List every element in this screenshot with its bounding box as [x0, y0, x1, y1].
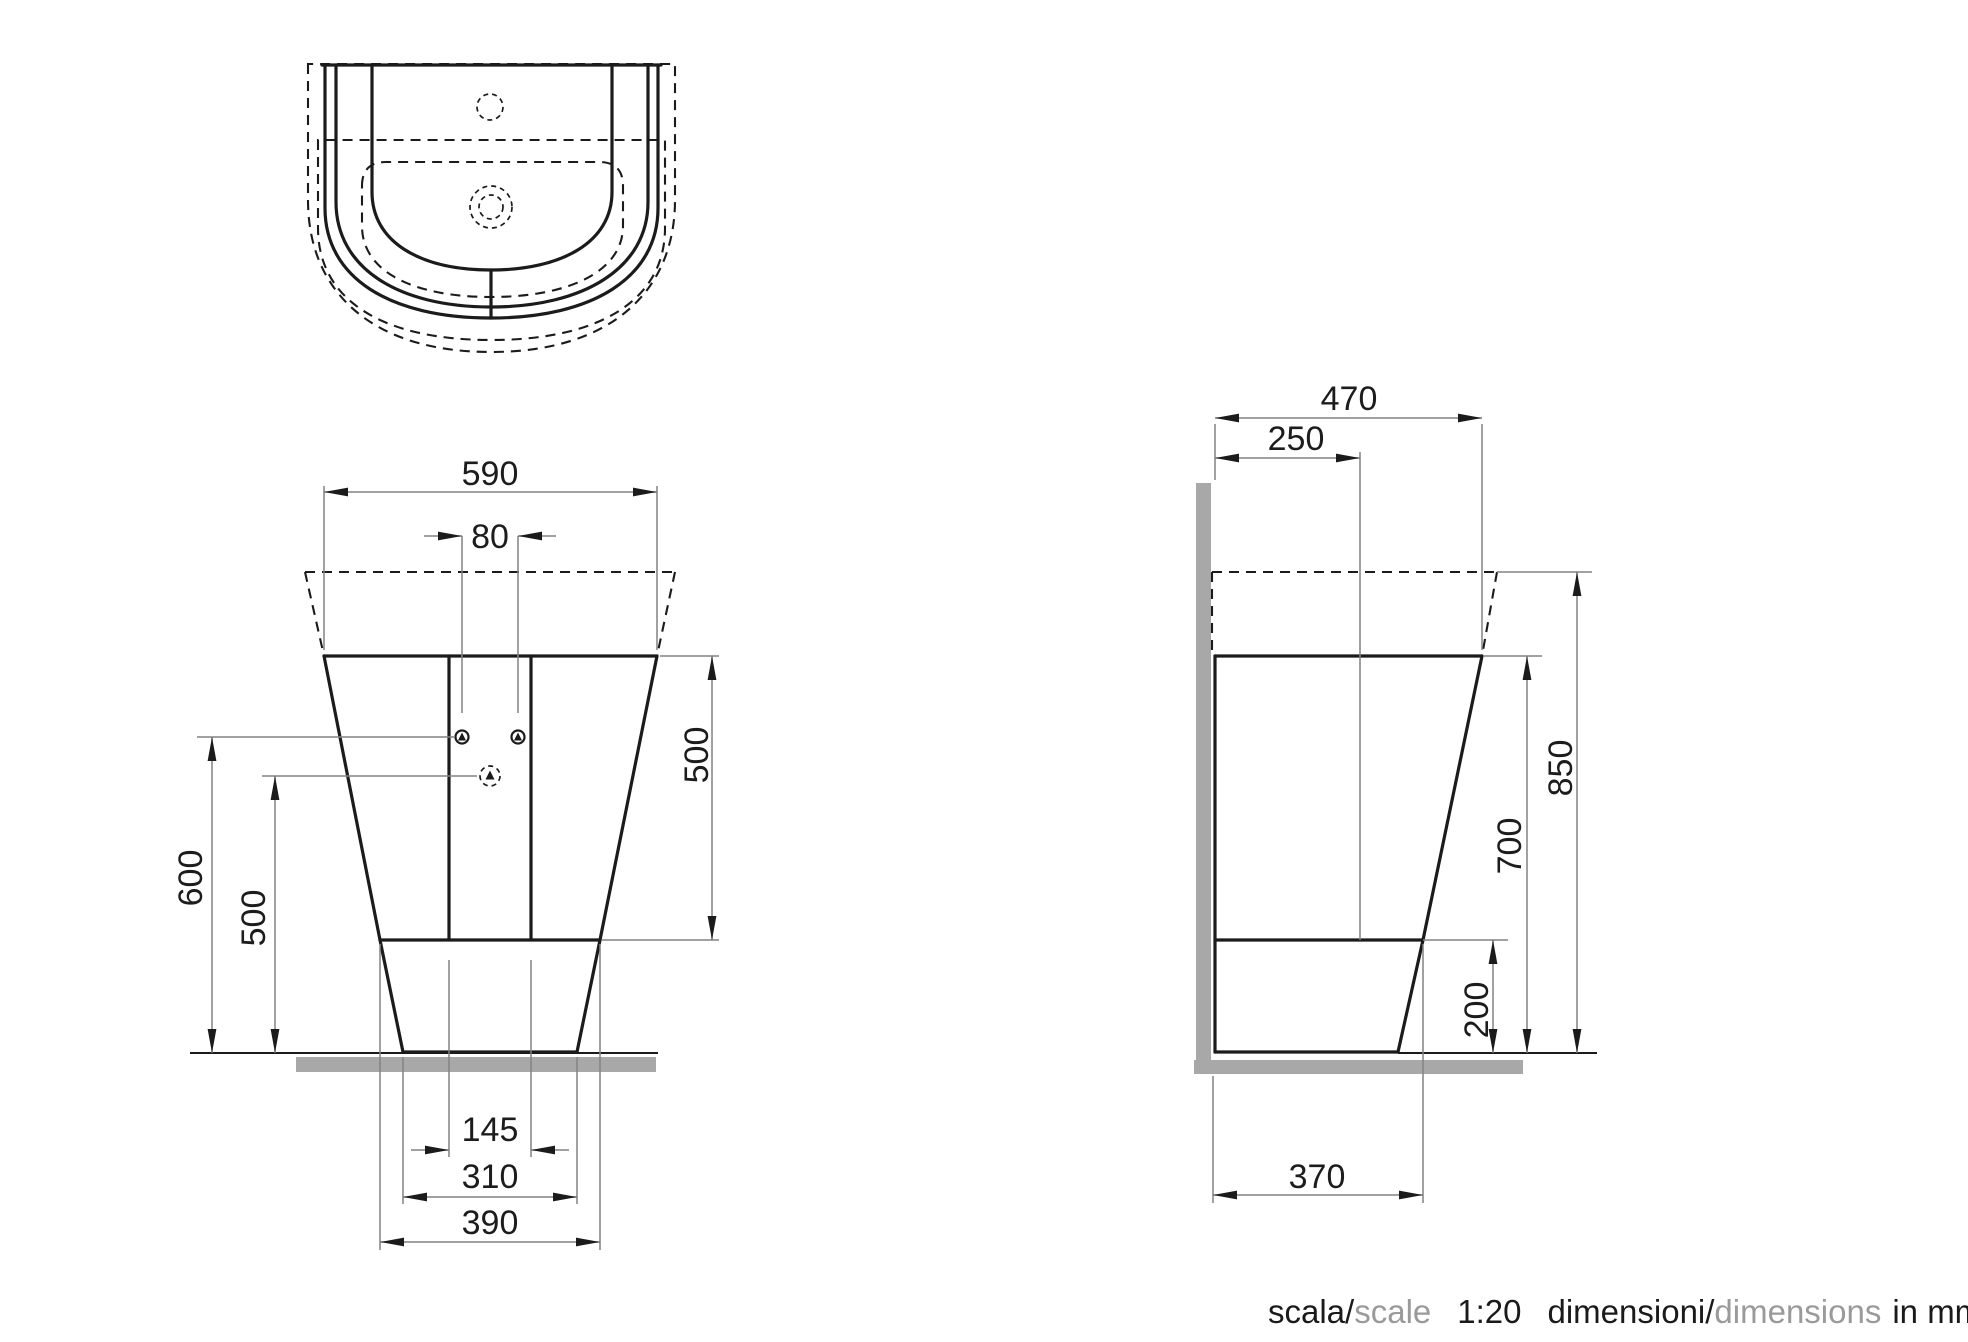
floor-bar-side — [1194, 1060, 1523, 1074]
dim-label-base-top-width: 390 — [462, 1204, 519, 1242]
top-view — [308, 64, 675, 352]
bowl-rim-line — [372, 65, 612, 270]
dim-label-total-height: 850 — [1542, 740, 1580, 797]
dim-label-body-height: 500 — [678, 727, 716, 784]
body-left-slant — [324, 656, 380, 940]
drain-inner-dashed — [479, 195, 503, 219]
side-view — [1194, 452, 1597, 1074]
front-view-dimensions: 590 80 600 500 500 145 310 390 — [172, 455, 719, 1250]
floor-bar-front — [296, 1057, 656, 1072]
technical-drawing-sheet: 590 80 600 500 500 145 310 390 — [0, 0, 1968, 1342]
dim-label-base-depth: 370 — [1289, 1158, 1346, 1196]
dim-label-drain-offset: 250 — [1268, 420, 1325, 458]
caption-unit-label: in mm — [1892, 1293, 1968, 1330]
dim-label-mount-height: 700 — [1491, 818, 1529, 875]
base-left-slant — [380, 940, 403, 1052]
side-base-slant — [1398, 940, 1423, 1052]
drain-outer-dashed — [470, 186, 512, 228]
bidet-dimension-drawing: 590 80 600 500 500 145 310 390 — [0, 0, 1968, 1342]
fixing-hole-right-triangle-icon — [514, 733, 522, 741]
wall-bar — [1196, 483, 1211, 1060]
rim-dashed-right-slant — [657, 572, 675, 656]
side-view-dimensions: 470 250 850 700 200 370 — [1213, 380, 1592, 1203]
body-right-slant — [600, 656, 657, 940]
caption-scale-ratio: 1:20 — [1457, 1293, 1521, 1330]
drain-hole-triangle-icon — [486, 771, 495, 780]
dim-label-front-top-width: 590 — [462, 455, 519, 493]
caption: scala/scale1:20dimensioni/dimensionsin m… — [1268, 1294, 1968, 1330]
dim-label-total-depth: 470 — [1321, 380, 1378, 418]
caption-scale-label: scale — [1354, 1293, 1431, 1330]
base-right-slant — [577, 940, 600, 1052]
dim-label-hole-height: 600 — [172, 850, 210, 907]
fixing-hole-left-triangle-icon — [458, 733, 466, 741]
dim-label-base-height: 200 — [1458, 982, 1496, 1039]
dim-label-hole-spacing: 80 — [471, 518, 509, 556]
dim-label-base-bottom-width: 310 — [462, 1158, 519, 1196]
side-front-slant — [1423, 656, 1482, 940]
rim-dashed-front-slant — [1482, 572, 1497, 656]
dim-label-drain-height: 500 — [235, 890, 273, 947]
dim-label-channel-width: 145 — [462, 1111, 519, 1149]
caption-dimensions-label: dimensions — [1714, 1293, 1881, 1330]
rim-dashed-left-slant — [305, 572, 324, 656]
caption-scala-label: scala/ — [1268, 1293, 1354, 1330]
front-view — [190, 572, 675, 1072]
faucet-hole-dashed — [477, 94, 503, 120]
caption-dimensioni-label: dimensioni/ — [1548, 1293, 1715, 1330]
